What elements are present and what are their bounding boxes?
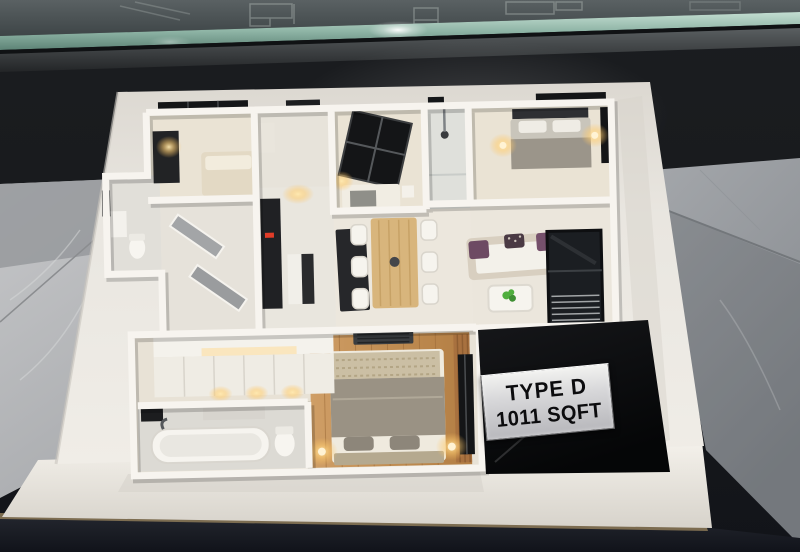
chair bbox=[422, 284, 438, 304]
bedroom-2-side-table bbox=[402, 185, 414, 197]
dining-area bbox=[335, 217, 438, 312]
type-d-sign-plate: TYPE D 1011 SQFT bbox=[480, 363, 615, 441]
chair bbox=[352, 288, 368, 308]
chair bbox=[421, 252, 437, 272]
headboard bbox=[334, 451, 444, 465]
bedroom-1-pillow-right bbox=[552, 120, 580, 133]
glass-specular-highlight bbox=[368, 21, 428, 39]
sofa-cushion-purple-left bbox=[468, 240, 489, 259]
living-room-window bbox=[547, 230, 603, 329]
pillow-left bbox=[344, 436, 374, 451]
toilet-tank bbox=[275, 426, 293, 434]
kitchen-island-dark-side bbox=[301, 254, 314, 304]
chair bbox=[351, 257, 367, 277]
bedroom-3-pillows bbox=[205, 155, 251, 170]
shower-glass-divider bbox=[428, 174, 468, 175]
bedroom-1-blanket bbox=[511, 137, 592, 169]
chair bbox=[421, 220, 437, 240]
bedroom-2-blanket bbox=[350, 190, 376, 207]
scale-model-photo: TYPE D 1011 SQFT bbox=[0, 0, 800, 552]
pillow-right bbox=[390, 435, 420, 450]
master-bed bbox=[330, 349, 447, 466]
wardrobe bbox=[153, 333, 334, 403]
bedroom-1-pillow-left bbox=[518, 120, 546, 133]
bathroom-2-toilet-tank bbox=[129, 234, 145, 241]
duvet bbox=[330, 377, 445, 438]
bathtub-basin bbox=[159, 433, 261, 457]
scene-rendering bbox=[0, 0, 800, 552]
window-mullion bbox=[548, 270, 602, 271]
chair bbox=[351, 225, 367, 245]
oven-display bbox=[265, 233, 274, 238]
